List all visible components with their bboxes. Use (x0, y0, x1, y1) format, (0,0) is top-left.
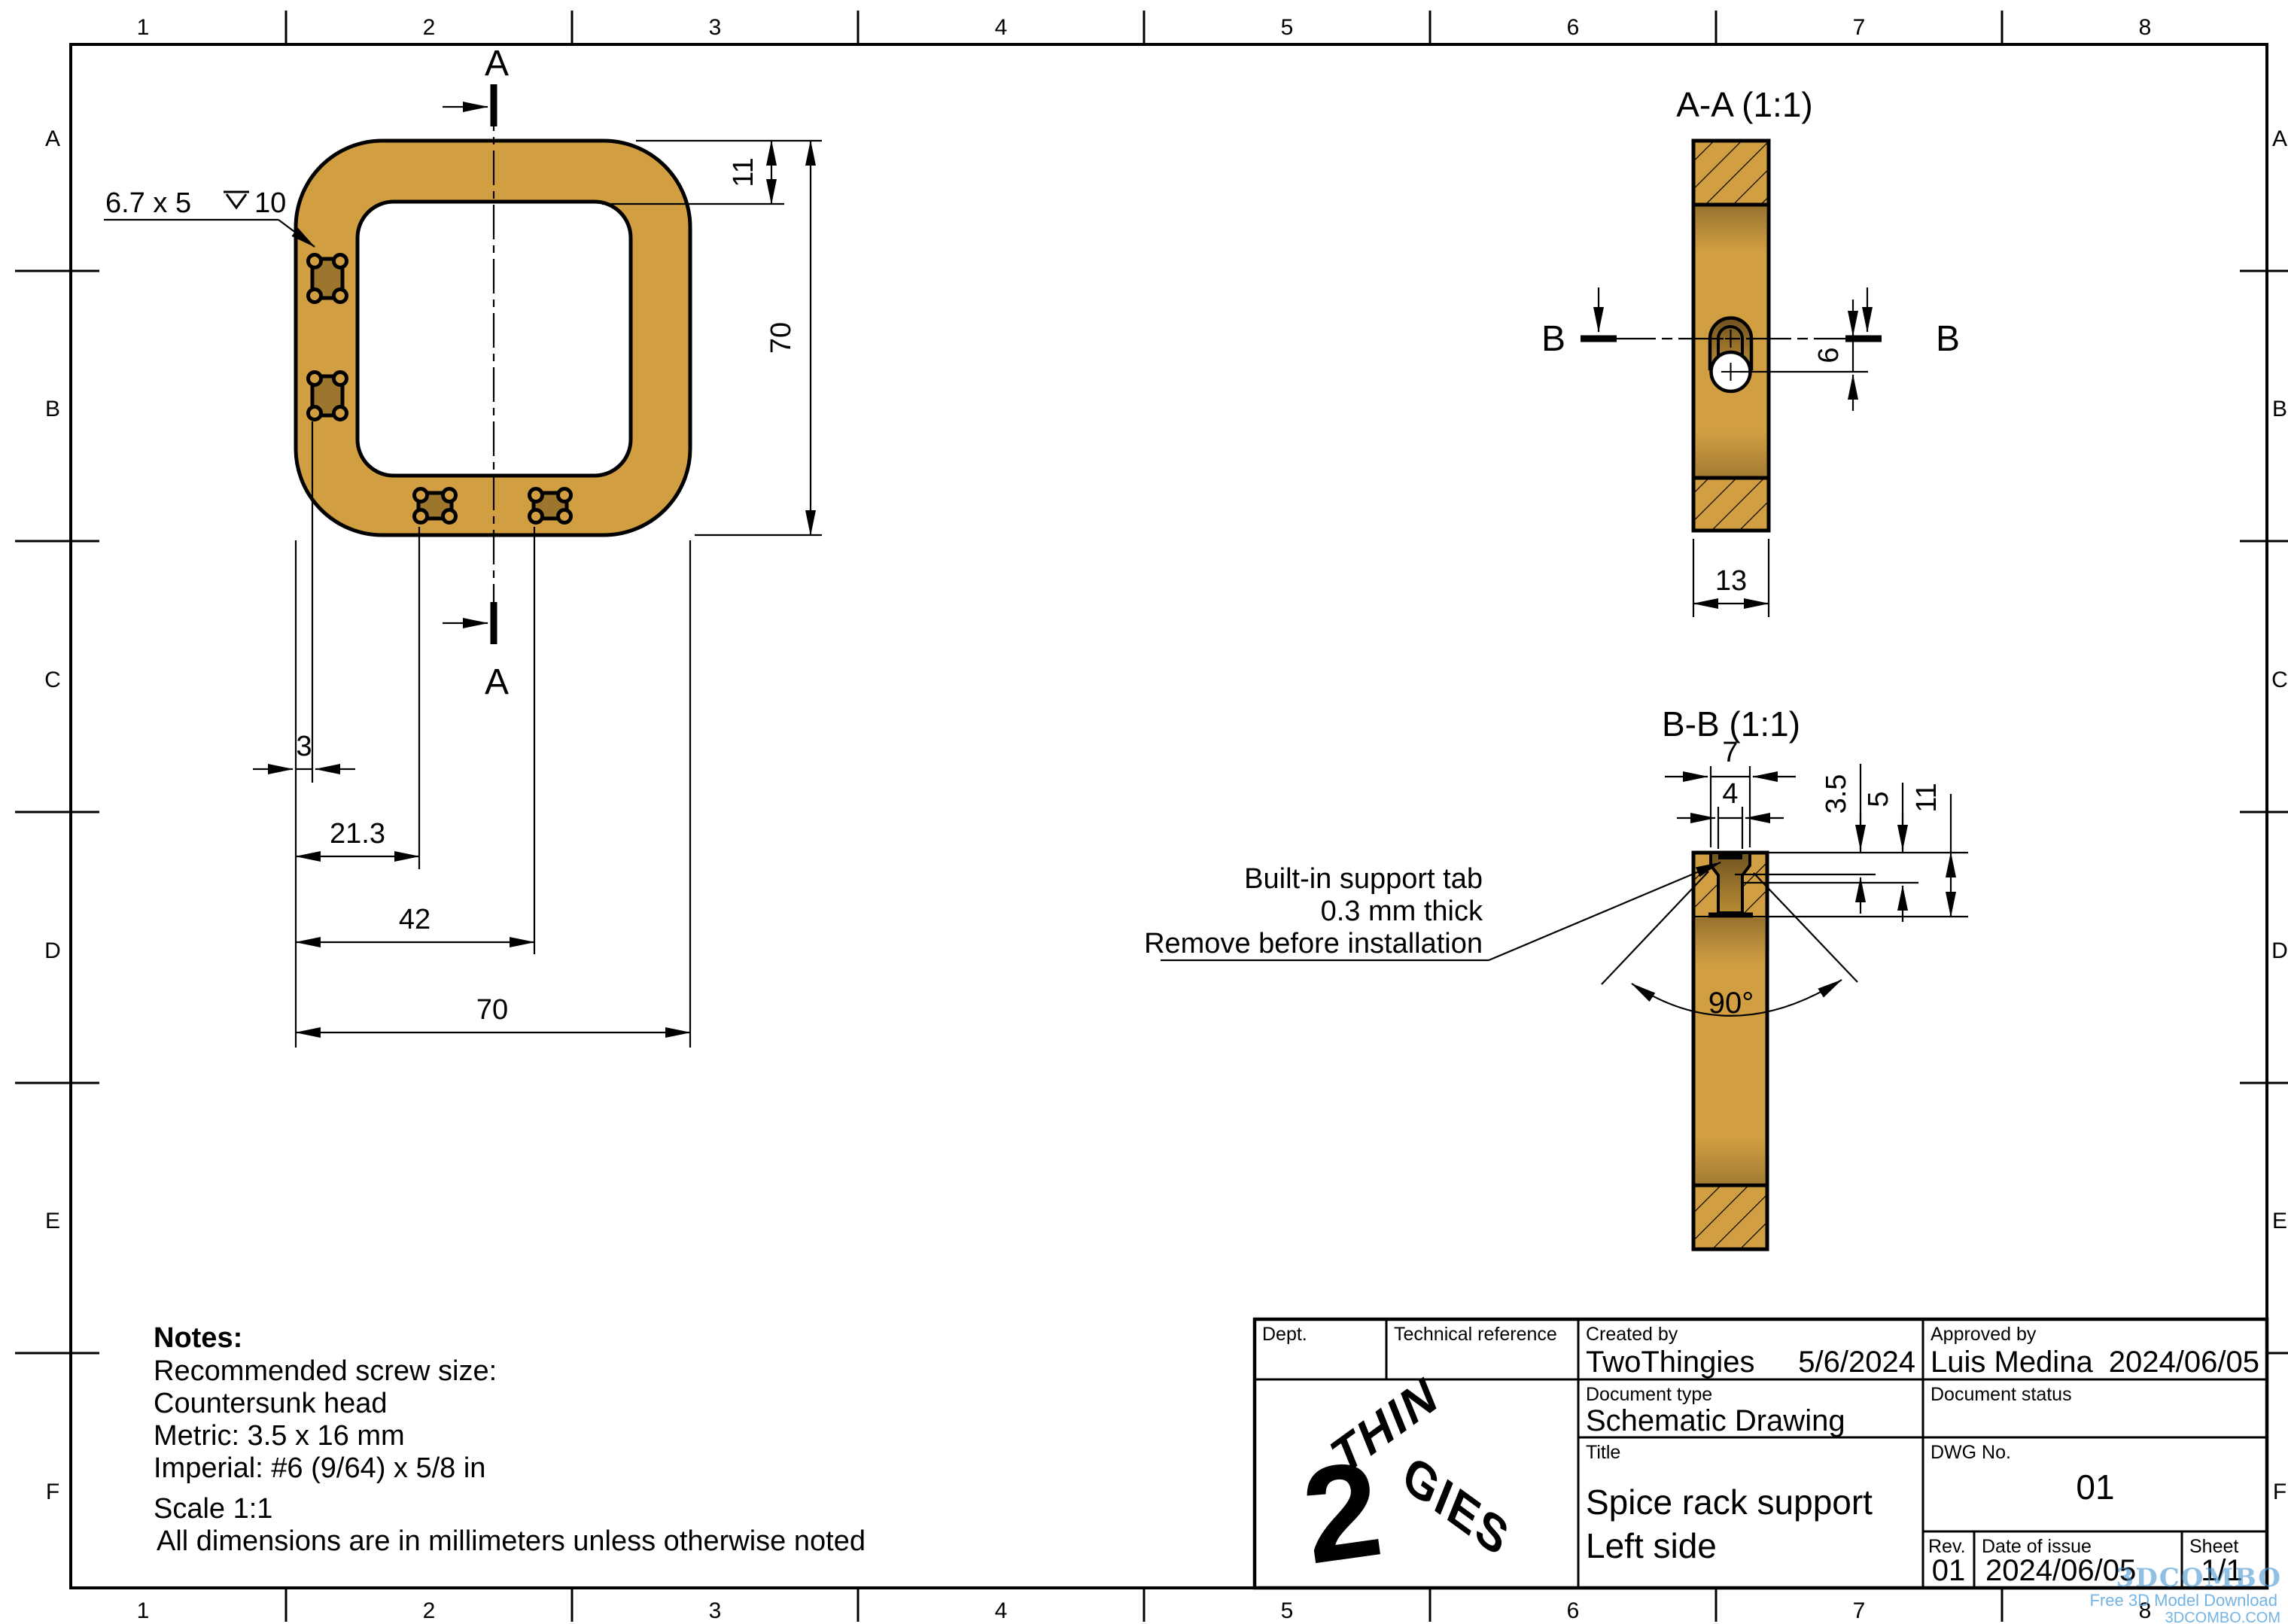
dim-text-70h: 70 (476, 994, 508, 1026)
grid-row-left-F: F (46, 1480, 59, 1504)
doc-status-label: Document status (1930, 1384, 2072, 1405)
grid-row-left-C: C (44, 668, 61, 692)
section-label-b-left: B (1541, 319, 1565, 359)
section-label-a-top: A (485, 44, 509, 84)
dim-hole2-42: 42 (296, 904, 534, 942)
dim-text-42: 42 (399, 904, 431, 935)
title-block: Dept. Technical reference Created by Two… (1255, 1319, 2267, 1593)
pocket-hole-bottom-1 (415, 489, 456, 523)
notes-line-4: Imperial: #6 (9/64) x 5/8 in (154, 1452, 485, 1484)
notes-heading: Notes: (154, 1322, 242, 1354)
approved-date-value: 2024/06/05 (2109, 1346, 2259, 1379)
aa-shade-bottom (1696, 431, 1766, 476)
watermark-brand: 3DCOMBO (2116, 1563, 2282, 1593)
corner-relief (309, 407, 321, 420)
grid-row-right-B: B (2272, 397, 2287, 421)
created-date-value: 5/6/2024 (1798, 1346, 1915, 1379)
notes-line-2: Countersunk head (154, 1388, 388, 1419)
bb-hatch-bottom (1693, 1185, 1767, 1249)
bb-shade-bottom (1696, 1138, 1765, 1183)
dim-text-7: 7 (1722, 737, 1738, 768)
grid-row-right-C: C (2271, 668, 2288, 692)
watermark: 3DCOMBO Free 3D Model Download 3DCOMBO.C… (2090, 1563, 2282, 1624)
dim-text-70v: 70 (765, 322, 797, 354)
title-label: Title (1586, 1442, 1620, 1463)
bb-reference-lines (1735, 853, 1968, 917)
corner-relief (334, 290, 347, 303)
section-bb-view: B-B (1:1) 7 4 (1144, 704, 1968, 1249)
corner-relief (443, 489, 456, 502)
corner-relief (443, 510, 456, 523)
grid-col-bottom-5: 5 (1281, 1598, 1294, 1623)
dwg-no-label: DWG No. (1930, 1442, 2011, 1463)
grid-col-bottom-2: 2 (423, 1598, 436, 1623)
section-label-a-bottom: A (485, 662, 509, 702)
section-label-b-right: B (1936, 319, 1960, 359)
dim-hole1-21-3: 21.3 (296, 818, 419, 856)
grid-row-right-A: A (2272, 126, 2287, 151)
dim-cbore-depth-3-5: 3.5 (1821, 764, 1861, 914)
notes-line-5: Scale 1:1 (154, 1493, 272, 1525)
grid-col-bottom-6: 6 (1567, 1598, 1580, 1623)
pocket-hole-bottom-left-side (309, 373, 347, 420)
corner-relief (530, 489, 543, 502)
tab-note-line1: Built-in support tab (1244, 863, 1483, 895)
dwg-no-value: 01 (2076, 1467, 2114, 1507)
dim-text-11: 11 (728, 157, 759, 187)
corner-relief (558, 510, 571, 523)
grid-col-top-8: 8 (2139, 15, 2152, 40)
aa-hatch-bottom (1693, 478, 1769, 531)
grid-row-left-D: D (44, 938, 61, 963)
created-by-value: TwoThingies (1586, 1346, 1755, 1379)
dim-text-3-5: 3.5 (1821, 774, 1852, 814)
pocket-hole-top-left (309, 255, 347, 303)
corner-relief (334, 255, 347, 268)
watermark-domain: 3DCOMBO.COM (2165, 1610, 2280, 1624)
grid-col-bottom-4: 4 (995, 1598, 1008, 1623)
grid-col-top-3: 3 (709, 15, 722, 40)
created-by-label: Created by (1586, 1324, 1678, 1345)
dim-width-70: 70 (296, 994, 690, 1032)
dim-height-70: 70 (695, 141, 822, 535)
section-aa-title: A-A (1:1) (1676, 85, 1813, 124)
dim-text-6: 6 (1813, 347, 1845, 363)
watermark-tagline: Free 3D Model Download (2090, 1591, 2277, 1610)
tab-note-line3: Remove before installation (1144, 928, 1483, 959)
corner-relief (309, 255, 321, 268)
hole-callout-size: 6.7 x 5 (105, 187, 191, 219)
dim-edge-3: 3 (253, 731, 355, 769)
dim-text-5: 5 (1863, 791, 1894, 807)
depth-symbol-icon (224, 192, 249, 208)
notes-block: Notes: Recommended screw size: Countersu… (154, 1322, 866, 1557)
grid-col-bottom-3: 3 (709, 1598, 722, 1623)
corner-relief (309, 290, 321, 303)
support-tab-callout: Built-in support tab 0.3 mm thick Remove… (1144, 862, 1721, 960)
dim-text-4: 4 (1722, 778, 1738, 810)
title-value-line1: Spice rack support (1586, 1483, 1873, 1522)
aa-shade-top (1696, 206, 1766, 251)
grid-col-top-5: 5 (1281, 15, 1294, 40)
support-tab (1718, 853, 1742, 859)
grid-col-top-4: 4 (995, 15, 1008, 40)
dim-text-11b: 11 (1911, 783, 1943, 812)
schematic-drawing-page: 1 2 3 4 5 6 7 8 1 2 3 4 5 6 7 8 A B C D … (0, 0, 2288, 1624)
dim-text-3: 3 (296, 731, 312, 762)
corner-relief (558, 489, 571, 502)
grid-col-top-2: 2 (423, 15, 436, 40)
dim-text-90: 90° (1708, 987, 1754, 1020)
pocket-hole-bottom-2 (530, 489, 571, 523)
corner-relief (415, 489, 427, 502)
aa-hatch-top (1693, 141, 1769, 205)
notes-line-6: All dimensions are in millimeters unless… (157, 1525, 866, 1557)
hole-callout-depth: 10 (254, 187, 286, 219)
bb-shade-top (1696, 918, 1765, 965)
grid-col-top-1: 1 (137, 15, 150, 40)
main-view: A A 6.7 x 5 10 11 70 (104, 44, 822, 1048)
approved-by-label: Approved by (1930, 1324, 2037, 1345)
grid-col-bottom-7: 7 (1853, 1598, 1866, 1623)
aa-keyhole (1710, 318, 1751, 392)
grid-col-top-7: 7 (1853, 15, 1866, 40)
dim-thickness-13: 13 (1693, 539, 1769, 617)
doc-type-label: Document type (1586, 1384, 1712, 1405)
corner-relief (415, 510, 427, 523)
approved-by-value: Luis Medina (1930, 1346, 2093, 1379)
title-value-line2: Left side (1586, 1526, 1717, 1565)
tab-note-line2: 0.3 mm thick (1321, 896, 1483, 927)
notes-line-1: Recommended screw size: (154, 1355, 497, 1387)
dim-text-21-3: 21.3 (330, 818, 385, 850)
grid-col-top-6: 6 (1567, 15, 1580, 40)
grid-row-right-E: E (2272, 1209, 2287, 1233)
corner-relief (309, 373, 321, 385)
dim-total-depth-11: 11 (1911, 783, 1951, 917)
grid-col-bottom-1: 1 (137, 1598, 150, 1623)
drawing-canvas: 1 2 3 4 5 6 7 8 1 2 3 4 5 6 7 8 A B C D … (0, 0, 2288, 1624)
grid-row-left-B: B (45, 397, 60, 421)
rev-value: 01 (1932, 1554, 1966, 1587)
corner-relief (530, 510, 543, 523)
tech-ref-label: Technical reference (1394, 1324, 1557, 1345)
dim-slot-4: 4 (1677, 778, 1784, 849)
corner-relief (334, 373, 347, 385)
date-of-issue-value: 2024/06/05 (1985, 1554, 2136, 1587)
grid-row-left-E: E (45, 1209, 60, 1233)
grid-row-left-A: A (45, 126, 60, 151)
corner-relief (334, 407, 347, 420)
dim-text-13: 13 (1715, 565, 1747, 597)
notes-line-3: Metric: 3.5 x 16 mm (154, 1420, 405, 1452)
hole-callout: 6.7 x 5 10 (104, 187, 315, 247)
grid-row-right-F: F (2273, 1480, 2286, 1504)
section-aa-view: A-A (1:1) B B (1541, 85, 1960, 617)
grid-row-right-D: D (2271, 938, 2288, 963)
dept-label: Dept. (1262, 1324, 1307, 1345)
doc-type-value: Schematic Drawing (1586, 1404, 1845, 1437)
